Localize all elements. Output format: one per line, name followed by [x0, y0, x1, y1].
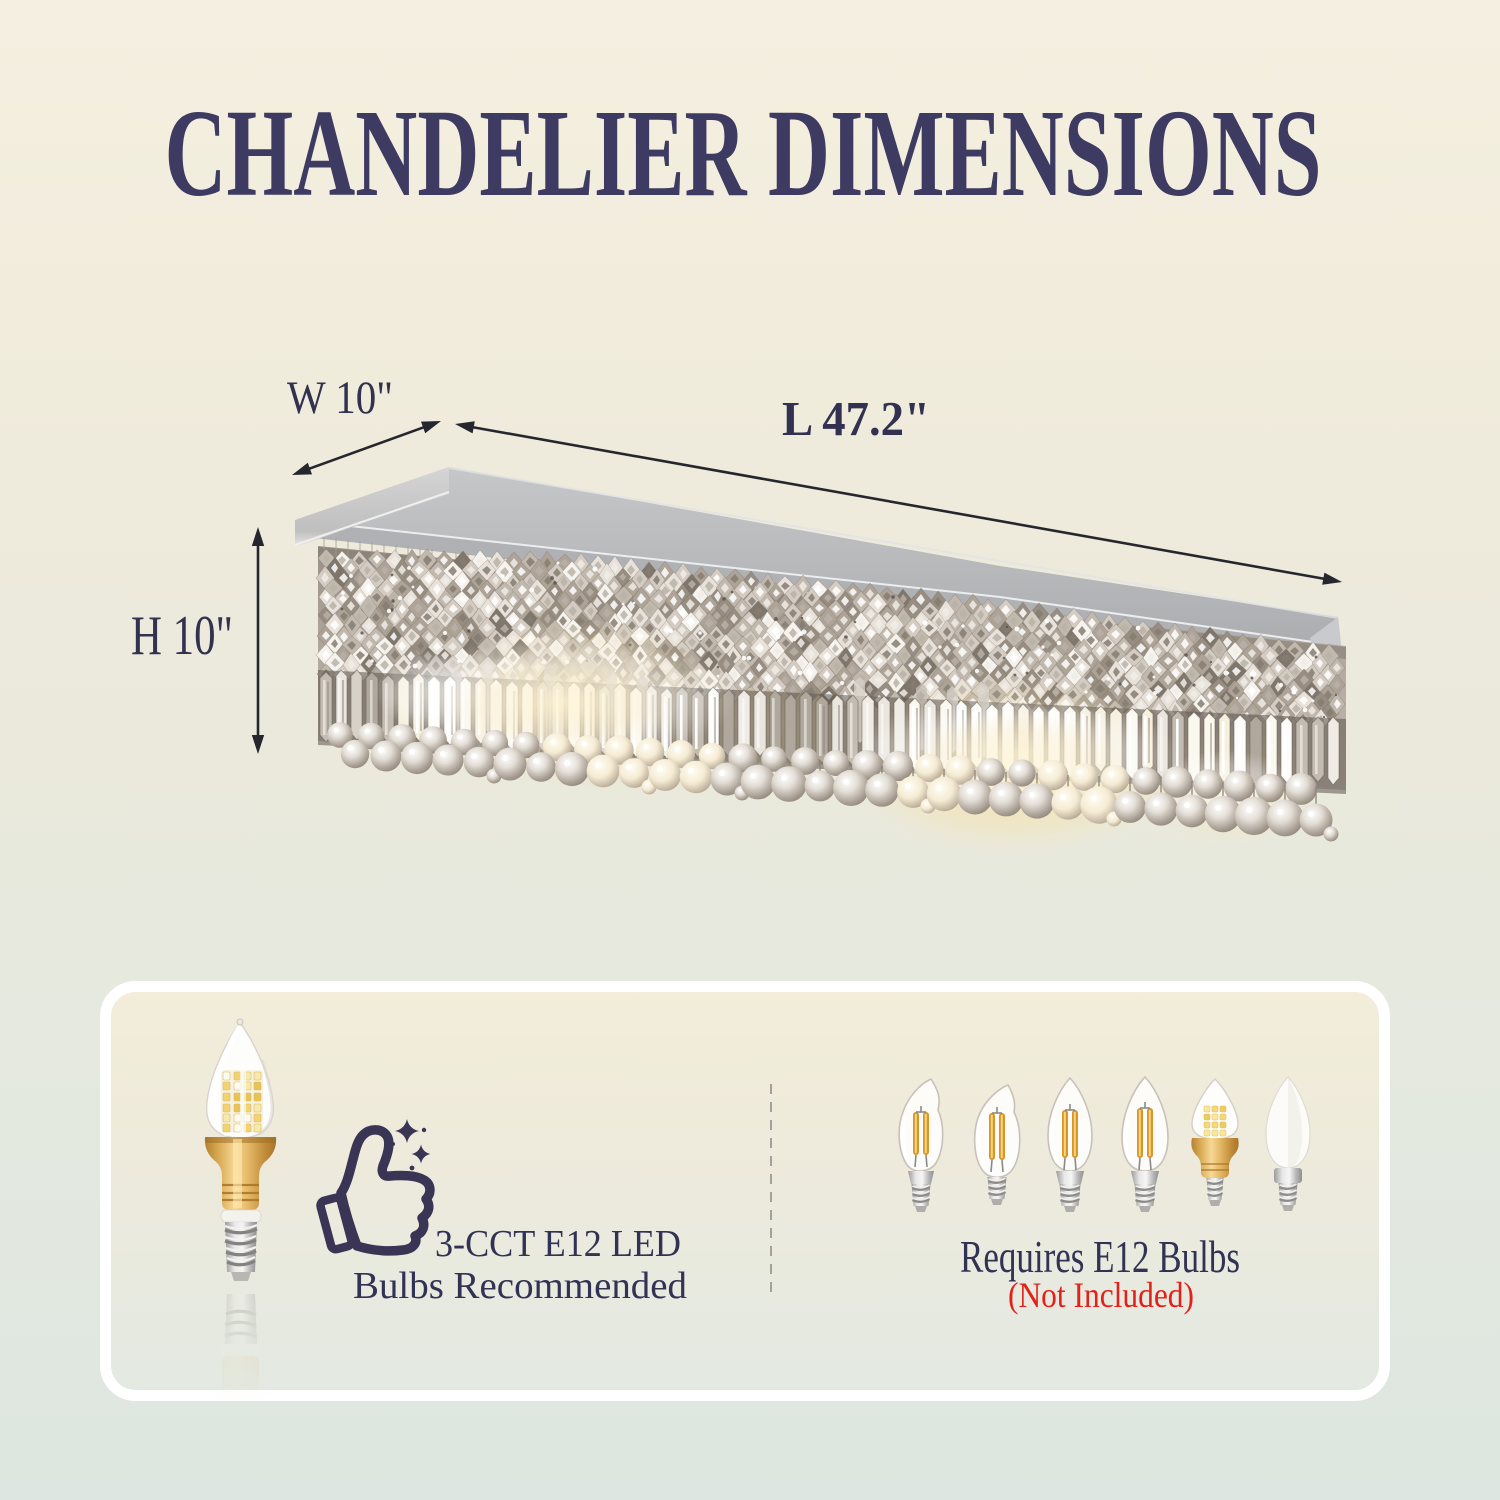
svg-text:3-CCT E12 LED: 3-CCT E12 LED — [435, 1223, 681, 1265]
svg-text:Bulbs Recommended: Bulbs Recommended — [353, 1265, 687, 1307]
svg-text:W 10": W 10" — [287, 372, 393, 424]
svg-text:L 47.2": L 47.2" — [782, 391, 930, 446]
svg-text:H 10": H 10" — [131, 605, 233, 667]
svg-text:CHANDELIER DIMENSIONS: CHANDELIER DIMENSIONS — [165, 85, 1322, 223]
svg-text:(Not Included): (Not Included) — [1008, 1275, 1194, 1315]
